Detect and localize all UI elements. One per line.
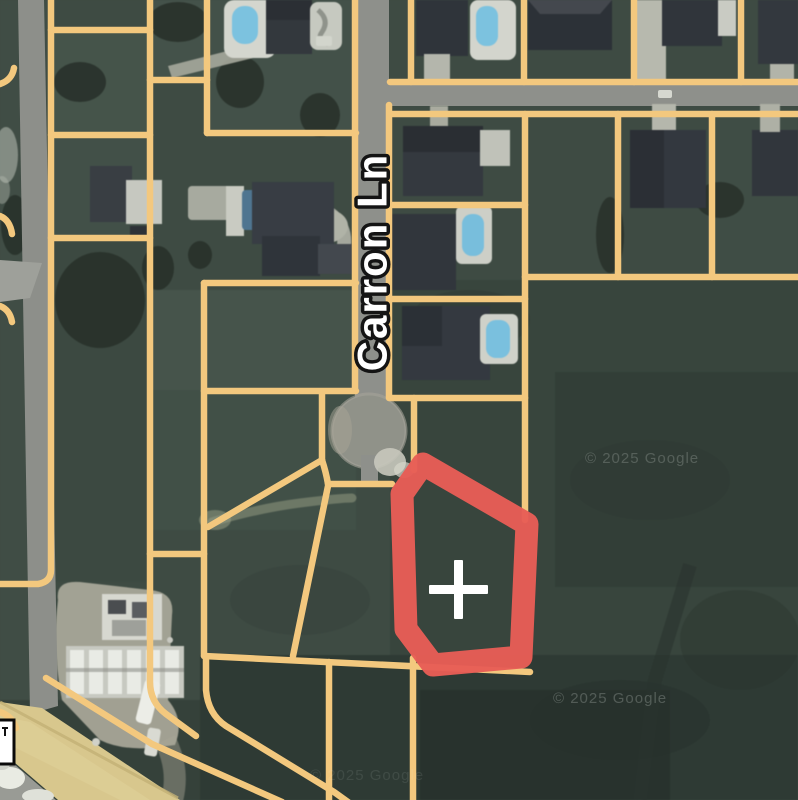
street-label: Carron Ln <box>349 153 396 372</box>
swimming-pool <box>232 6 258 44</box>
satellite-map-canvas[interactable]: Carron Ln © 2025 Google © 2025 Google © … <box>0 0 798 800</box>
swimming-pool <box>486 320 510 358</box>
google-watermark: © 2025 Google <box>585 450 699 467</box>
car <box>658 90 672 98</box>
google-watermark: © 2025 Google <box>553 690 667 707</box>
swimming-pool <box>462 214 484 256</box>
google-watermark: © 2025 Google <box>310 767 424 784</box>
partial-map-badge <box>0 720 14 764</box>
swimming-pool <box>476 6 498 46</box>
top-road <box>383 84 798 106</box>
house-roof <box>252 182 334 244</box>
